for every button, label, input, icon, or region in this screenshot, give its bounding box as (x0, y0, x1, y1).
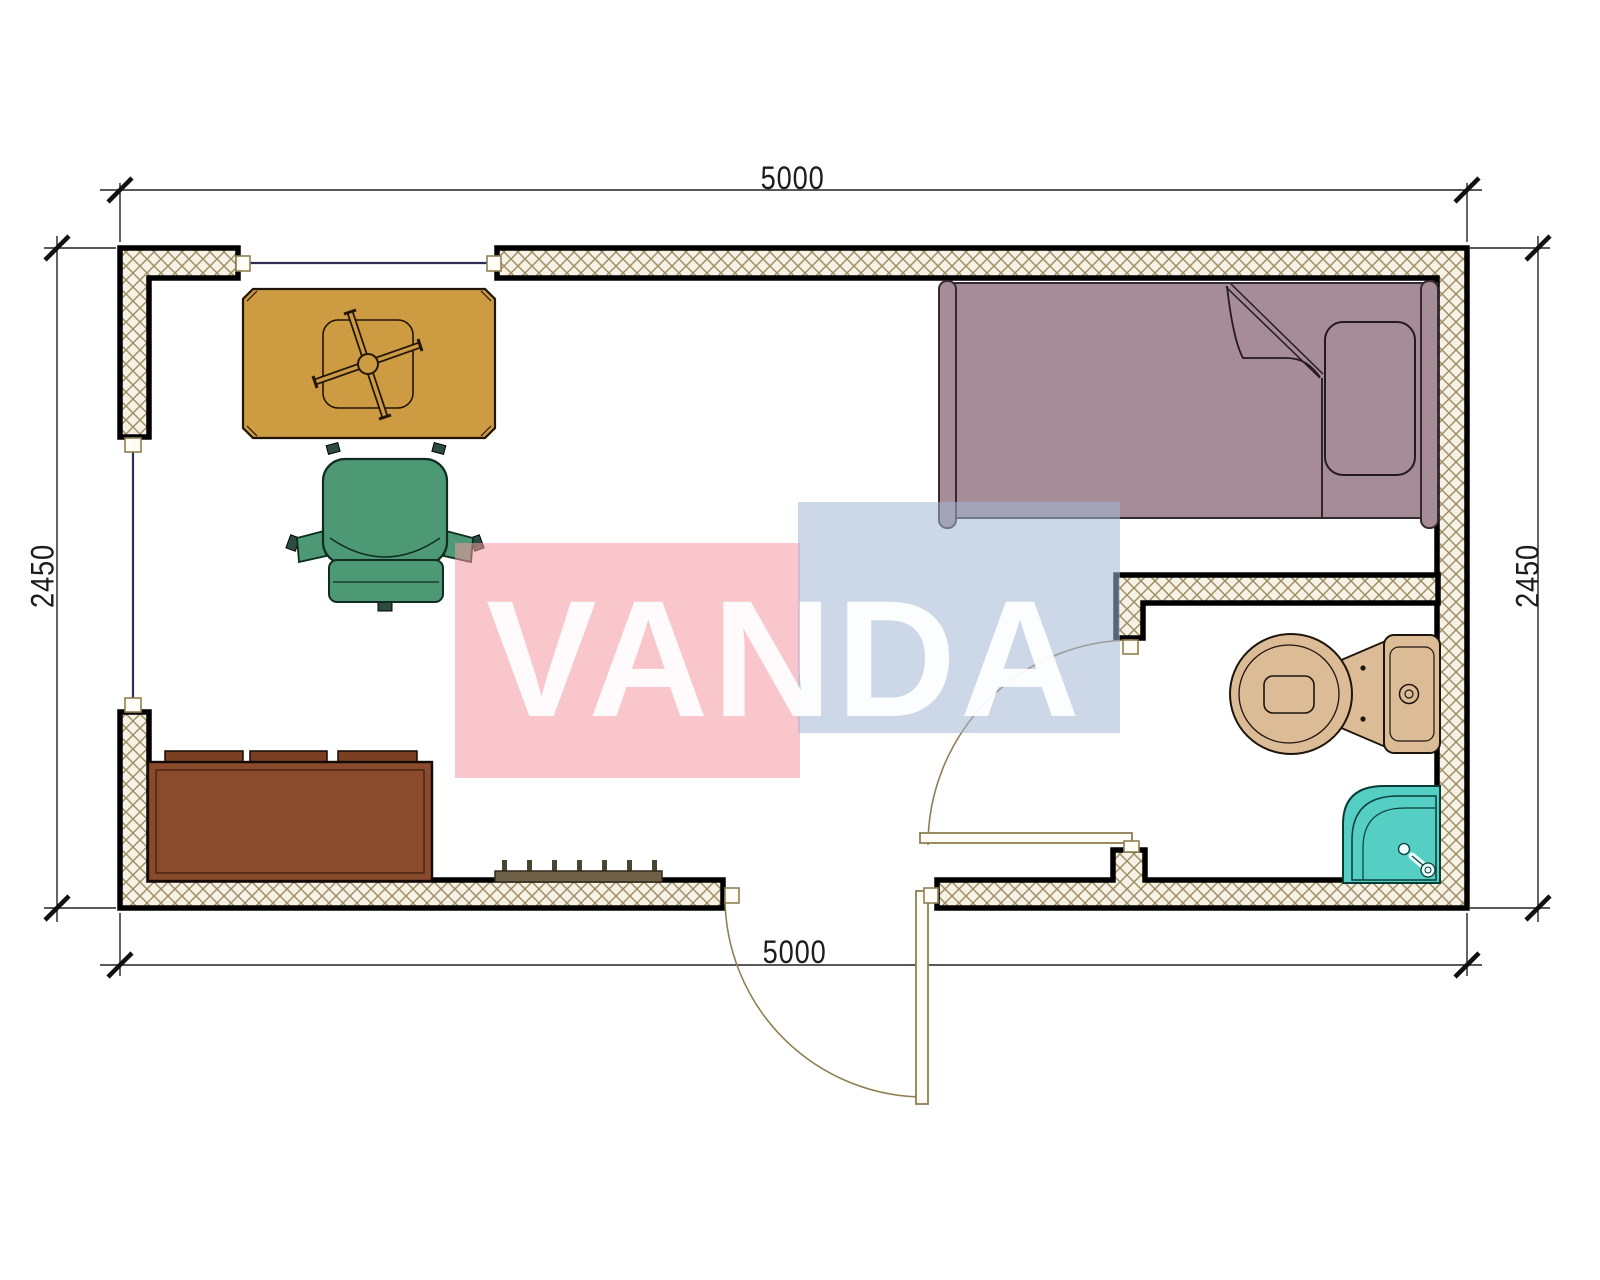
sofa (148, 751, 432, 881)
entrance-door-leaf (916, 891, 928, 1104)
chair-caster (432, 443, 446, 455)
floor-plan-canvas: 5000 5000 2450 2450 VANDA (0, 0, 1600, 1280)
chair-caster (326, 443, 340, 455)
dimension-top: 5000 (761, 162, 825, 194)
toilet (1230, 634, 1440, 754)
bed-pillow (1325, 322, 1415, 475)
dimension-bottom: 5000 (763, 936, 827, 968)
bathroom-door-leaf (920, 833, 1132, 843)
chair-armrest (297, 531, 326, 562)
desk (243, 289, 495, 438)
window-jamb (487, 256, 501, 271)
entrance-door (725, 888, 938, 1104)
bed-headboard (939, 281, 956, 528)
radiator (495, 860, 662, 882)
entrance-door-swing-arc (725, 897, 925, 1097)
sofa-seat (148, 762, 432, 881)
door-jamb (1124, 841, 1139, 852)
radiator-body (495, 871, 662, 882)
window-jamb (125, 698, 141, 712)
toilet-tank (1384, 635, 1440, 753)
chair-backrest (323, 459, 447, 564)
door-jamb (1123, 640, 1138, 654)
shower-drain (1399, 844, 1410, 855)
window-jamb (125, 438, 141, 452)
toilet-bowl (1230, 634, 1352, 754)
window-jamb (236, 256, 250, 271)
bed-footboard (1421, 281, 1438, 528)
door-jamb (924, 888, 938, 903)
bed (939, 281, 1438, 528)
shower-tray (1343, 786, 1440, 883)
wall-bathroom-partition (1116, 575, 1438, 638)
dimension-left: 2450 (27, 544, 59, 608)
chair-seat (329, 560, 443, 602)
wall-top-left-corner (120, 248, 238, 437)
door-jamb (725, 888, 739, 903)
dimension-right: 2450 (1512, 544, 1544, 608)
watermark-text: VANDA (486, 577, 1084, 743)
